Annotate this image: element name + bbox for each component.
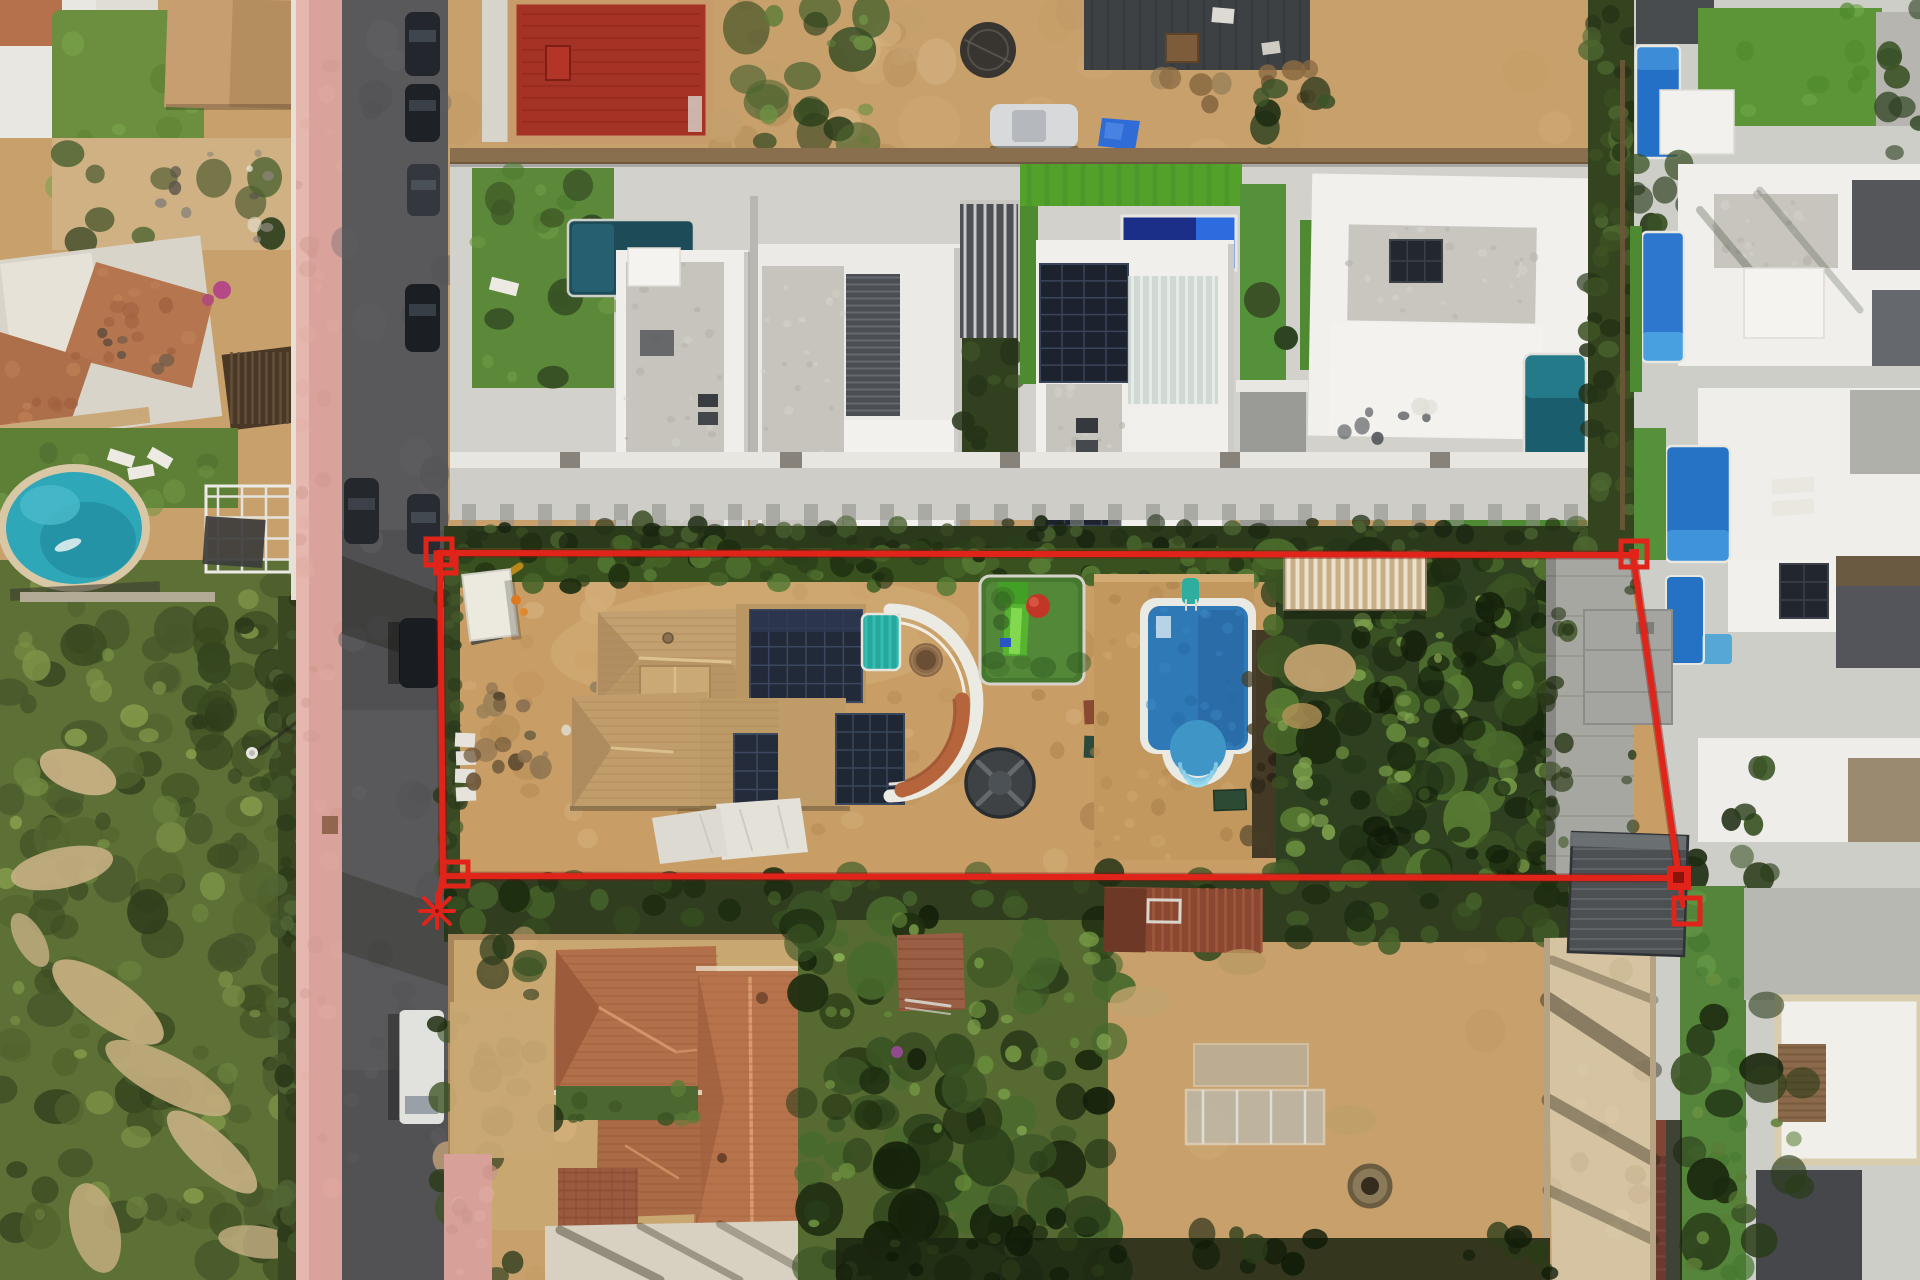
parked-car: [405, 84, 440, 142]
garden-highlights: [1005, 1046, 1021, 1063]
mat-shadows: [1066, 652, 1091, 673]
gravel-noise: [1065, 389, 1074, 398]
hedge-texture: [1566, 516, 1587, 533]
jungle-shadows: [1363, 816, 1390, 837]
white-item: [1261, 41, 1280, 55]
white-block: [455, 732, 476, 747]
scrub-texture-dark: [228, 768, 242, 784]
dark-trailer: [202, 516, 265, 568]
hedge-texture: [280, 1206, 298, 1226]
gravel-noise: [708, 431, 716, 437]
scrub-texture-light: [183, 1188, 203, 1204]
hedge-texture: [1604, 432, 1619, 448]
gravel-noise: [1365, 275, 1371, 282]
gravel-noise: [783, 285, 789, 291]
scrub-texture-dark: [228, 1104, 252, 1123]
jungle-shadows: [1466, 848, 1479, 859]
jungle-highlights: [1434, 653, 1442, 663]
scrub-texture-dark: [60, 624, 107, 666]
mat-shadows: [1030, 657, 1056, 678]
terrace-trees: [85, 207, 115, 232]
tree-cluster: [723, 1, 770, 54]
hedge-texture: [1002, 518, 1015, 528]
metal-structure: [1568, 832, 1688, 956]
hedge-texture: [937, 577, 957, 597]
jungle-clearing: [1284, 644, 1356, 692]
scrub-bush-cluster: [192, 715, 208, 730]
terrace-furniture: [1365, 407, 1373, 417]
shadow-band-texture: [927, 1245, 939, 1255]
sidewalk-texture: [296, 486, 308, 499]
parcel-dirt-texture: [577, 829, 597, 848]
gravel-noise: [1399, 308, 1405, 312]
silver-car-roof: [1012, 110, 1046, 142]
shadow-band-texture: [966, 1239, 979, 1250]
sidewalk-texture: [307, 936, 323, 954]
shadow-band-texture: [988, 1233, 1001, 1244]
gravel-noise: [1530, 252, 1538, 262]
hedge-texture: [790, 524, 805, 541]
deck-texture: [1150, 835, 1166, 848]
hedge-texture: [1147, 514, 1165, 532]
terrace-items: [253, 236, 261, 243]
tree-highlights: [827, 40, 836, 48]
shadow-gap: [1666, 1120, 1682, 1280]
sidewalk-texture: [300, 119, 311, 130]
jungle-highlights: [1299, 757, 1312, 768]
jungle-clearing: [1282, 703, 1322, 729]
scrub-texture-dark: [164, 624, 190, 646]
gravel-noise: [1119, 422, 1125, 429]
hedge-texture: [608, 563, 629, 588]
roof-equipment: [640, 330, 674, 356]
gravel-noise: [1518, 300, 1522, 304]
driveway-texture: [1578, 1064, 1589, 1075]
jungle-canopy: [1376, 783, 1412, 816]
trees-edge: [1877, 41, 1902, 70]
fence-texture: [1240, 825, 1258, 846]
hedge-texture: [559, 578, 581, 594]
scrub-texture-light: [121, 1126, 151, 1148]
woodpile: [1159, 67, 1181, 90]
hedge-texture: [1578, 321, 1601, 341]
van-shadow: [388, 1014, 400, 1120]
hedge-texture: [275, 997, 289, 1008]
garden-trees: [798, 1132, 826, 1158]
sunbed: [1772, 477, 1815, 495]
scrub-texture-light: [192, 904, 209, 923]
tan-gable-house: [229, 0, 298, 109]
tree-band-texture: [1421, 926, 1439, 944]
villaB-dark-roof: [1852, 180, 1920, 270]
tan-gable-house: [164, 0, 233, 109]
mosaic-inner: [916, 650, 936, 670]
gravel-noise: [1749, 251, 1753, 256]
roadside-trees-south: [427, 1016, 448, 1032]
lawn-texture: [1736, 41, 1754, 61]
scrub-texture-dark: [52, 1048, 77, 1076]
south-palms: [1745, 1066, 1787, 1103]
shadow-band-texture: [1031, 1225, 1048, 1240]
roof-vent: [546, 46, 570, 80]
driveway-texture: [1570, 1152, 1589, 1172]
tile-texture: [64, 398, 78, 409]
trees-mid: [1730, 845, 1754, 869]
gravel-noise: [1407, 287, 1412, 293]
parcel-dirt-texture: [463, 681, 477, 691]
lawn-texture: [535, 184, 546, 195]
left-pool-shallow: [20, 485, 80, 525]
lawn-texture: [1732, 1254, 1754, 1280]
tree-band-texture: [718, 899, 741, 922]
sidewalk-texture: [307, 248, 318, 257]
garden-trees: [1044, 1061, 1067, 1080]
hedge-texture: [1306, 518, 1319, 528]
scrub-texture-dark: [149, 940, 174, 958]
garden-highlights: [969, 1001, 986, 1018]
villa-windows: [103, 339, 113, 347]
hedge-texture: [1595, 245, 1609, 256]
road-texture: [352, 303, 387, 342]
terrace-furniture: [1337, 424, 1351, 439]
hedge-texture: [1070, 525, 1083, 537]
scrub-texture-light: [65, 729, 87, 747]
hedge-texture: [1609, 208, 1629, 226]
deck-texture: [1098, 806, 1105, 812]
car-windshield: [411, 512, 436, 523]
stair-bulkhead: [1744, 268, 1824, 338]
villa2-pergola-slats: [846, 274, 900, 416]
aerial-property-photo: [0, 0, 1920, 1280]
roadside-trees-south: [523, 989, 539, 1001]
scrub-texture-light: [126, 1197, 148, 1219]
terrace-items: [155, 198, 167, 208]
hedge-texture: [1602, 5, 1620, 23]
gravel-noise: [826, 297, 833, 306]
hedge-texture: [967, 375, 987, 397]
road-texture: [370, 1037, 386, 1051]
gravel-noise: [794, 385, 800, 392]
gravel-noise: [1054, 387, 1063, 397]
garden-sand-patch: [1324, 1105, 1376, 1135]
terrace-items: [181, 207, 191, 218]
hedge-texture: [1582, 27, 1601, 47]
jungle-canopy: [1271, 776, 1288, 789]
south-palms: [1705, 1089, 1743, 1117]
garden-highlights: [884, 1011, 892, 1017]
deck-texture: [1158, 778, 1167, 787]
hedge-texture: [1434, 520, 1452, 538]
tree-band-texture: [1344, 901, 1374, 932]
jungle-shadows: [1351, 626, 1370, 649]
garden-trees: [1010, 932, 1060, 990]
gravel-noise: [1417, 227, 1426, 233]
terrace-items: [263, 171, 274, 181]
gravel-noise: [1745, 242, 1753, 250]
scrub-texture-dark: [55, 1094, 84, 1126]
scrub-texture-dark: [6, 1161, 27, 1178]
pool-water-texture: [1182, 627, 1190, 634]
parcel-dirt-texture: [887, 691, 902, 704]
scrub-texture-light: [90, 680, 112, 703]
corner-star-center: [435, 909, 439, 913]
construction-debris: [518, 750, 533, 763]
gravel-noise: [1107, 444, 1112, 448]
hedge-texture: [1588, 149, 1603, 161]
scrub-texture-dark: [70, 1024, 91, 1039]
garden-highlights: [834, 953, 845, 962]
garden-trees: [847, 941, 897, 1000]
sidewalk-texture: [299, 261, 316, 277]
path-texture: [474, 1209, 486, 1222]
gravel-noise: [1745, 219, 1750, 224]
palm-fronds: [1706, 973, 1721, 985]
scrub-texture-light: [13, 758, 40, 788]
scrub-texture-light: [13, 981, 25, 994]
scrub-bush-cluster: [249, 776, 271, 791]
deck-texture: [1125, 818, 1135, 828]
deck-texture: [1151, 799, 1165, 816]
stair-bulkhead: [628, 248, 680, 286]
hedge-texture: [1545, 518, 1560, 532]
parcel-dirt-texture: [811, 823, 825, 835]
ac-unit: [698, 394, 718, 407]
scrub-texture-light: [217, 1063, 237, 1084]
gravel-noise: [798, 317, 806, 323]
fence-texture: [1255, 710, 1264, 716]
jungle-shadows: [1432, 709, 1463, 745]
gravel-noise: [1764, 263, 1769, 268]
tree-cluster: [804, 12, 828, 36]
ac-unit: [1076, 418, 1098, 433]
mat-shadows: [993, 614, 1009, 630]
construction-debris: [516, 699, 530, 712]
hedge-texture: [1524, 528, 1538, 540]
hedge-texture: [1606, 160, 1622, 175]
garden-highlights: [933, 1124, 942, 1133]
lawn-texture: [502, 162, 525, 180]
tree-highlights: [849, 35, 860, 43]
hedge-texture: [1456, 524, 1474, 544]
hedge-texture: [688, 516, 708, 534]
garden-trees: [784, 924, 818, 962]
jungle-highlights: [1379, 766, 1393, 777]
mat-shadows: [1013, 655, 1032, 670]
garden-texture: [576, 1114, 585, 1122]
gravel-noise: [784, 406, 793, 415]
lawn-texture: [598, 298, 619, 314]
scrub-texture-light: [238, 589, 259, 609]
sidewalk-texture: [298, 326, 316, 343]
south-gray-roof: [1744, 888, 1920, 1000]
gate-gap: [1220, 452, 1240, 468]
deck-texture: [1109, 594, 1121, 604]
dirt-texture: [1464, 948, 1487, 964]
tile-texture: [103, 351, 114, 363]
deck-texture: [1127, 791, 1138, 802]
gravel-noise: [783, 320, 791, 328]
gravel-noise: [1058, 426, 1064, 431]
terrace-items: [255, 150, 262, 158]
tree-band-texture: [768, 891, 781, 905]
hedge-texture: [776, 522, 793, 539]
scrub-texture-light: [74, 1049, 87, 1058]
jungle-shadows: [1485, 845, 1508, 864]
rust-dark-patch: [1103, 888, 1146, 953]
red-flat-roof-building: [512, 0, 710, 140]
lawn-texture: [112, 124, 125, 136]
sidewalk-texture: [318, 85, 335, 103]
tile-texture: [104, 317, 115, 327]
palm-fronds: [1728, 1191, 1747, 1209]
sunbed: [1772, 499, 1815, 517]
trees-mid: [1734, 804, 1756, 821]
gravel-noise: [1737, 238, 1745, 244]
gate-gap: [1430, 452, 1450, 468]
garden-highlights: [892, 912, 907, 928]
deck-texture: [1106, 652, 1113, 660]
sandy-lot-texture: [917, 38, 956, 84]
well-hole: [1361, 1177, 1379, 1195]
path-texture: [452, 1199, 467, 1217]
hedge-texture: [448, 678, 463, 692]
hedge-texture: [498, 522, 511, 533]
gravel-noise: [1490, 245, 1497, 250]
villaD-pool-steps: [1702, 634, 1732, 664]
divider-trees: [1653, 176, 1678, 203]
gate-gap: [780, 452, 802, 468]
hedge-texture: [269, 1020, 290, 1040]
gravel-noise: [1516, 274, 1520, 278]
lawn-texture: [1807, 75, 1830, 93]
palm-trees: [563, 170, 593, 202]
sidewalk-texture: [314, 799, 327, 812]
scrub-texture-dark: [260, 572, 296, 598]
palm-fronds: [1735, 1172, 1747, 1182]
deck-texture: [1090, 747, 1101, 756]
scrub-texture-light: [153, 681, 167, 694]
deck-texture: [1137, 769, 1149, 780]
scrub-texture-light: [118, 961, 142, 981]
tile-texture: [5, 361, 20, 379]
shadow-band-texture: [1001, 1260, 1021, 1280]
trees-top-right-lot: [1317, 94, 1335, 108]
pergola-shadow: [1284, 610, 1426, 619]
scrub-texture-light: [200, 872, 225, 900]
garden-trees: [873, 1141, 920, 1189]
chimney: [717, 1153, 727, 1163]
blue-toy: [1000, 638, 1011, 647]
pool-water-texture: [1171, 712, 1185, 727]
tree-band-texture: [642, 895, 666, 916]
corner-marker-br-hole: [1673, 872, 1684, 883]
hedge-texture: [1248, 523, 1270, 539]
driveway-texture: [1604, 1106, 1619, 1124]
pool-water-texture: [1159, 662, 1171, 673]
deck-texture: [1109, 638, 1117, 645]
construction-debris: [495, 737, 512, 752]
garden-highlights: [825, 1080, 835, 1089]
gravel-noise: [1445, 242, 1454, 250]
tile-texture: [23, 403, 32, 411]
lawn-texture: [1852, 65, 1870, 80]
gravel-noise: [1509, 284, 1513, 289]
garden-highlights: [909, 1083, 920, 1096]
tree-band-texture: [1285, 925, 1313, 950]
lawn-texture: [156, 117, 182, 141]
jungle-shadows: [1494, 781, 1511, 796]
garden-sand-patch: [1218, 949, 1266, 975]
sidewalk-texture: [318, 1133, 328, 1143]
sidewalk-texture: [323, 1179, 341, 1199]
tree-band-texture: [590, 889, 609, 911]
hedge-texture: [1034, 515, 1048, 532]
shadow-band-texture: [1508, 1241, 1521, 1255]
sidewalk-texture: [301, 566, 316, 577]
hedge-texture: [522, 573, 544, 594]
hedge-texture: [971, 439, 986, 450]
tree-band-texture: [1302, 884, 1331, 904]
tree-cluster: [829, 27, 876, 72]
hedge-texture: [1000, 338, 1023, 366]
jungle-shadows: [1460, 651, 1476, 666]
tree-band-texture: [1420, 893, 1439, 909]
gravel-noise: [806, 361, 813, 368]
path-texture: [456, 1268, 464, 1276]
tree-highlights: [858, 104, 873, 116]
hedge-texture: [1504, 530, 1525, 545]
sidewalk-texture: [319, 668, 335, 681]
lawn-texture: [163, 479, 185, 503]
driveway-texture: [1575, 1099, 1586, 1109]
garden-highlights: [998, 1089, 1010, 1100]
garden-highlights: [1064, 992, 1075, 1003]
sidewalk-texture: [295, 418, 310, 433]
jungle-shadows: [1475, 621, 1496, 636]
garden-highlights: [840, 1008, 851, 1017]
deck-texture: [1165, 853, 1172, 860]
lawn-texture: [1696, 967, 1709, 977]
jungle-canopy: [1342, 826, 1362, 843]
pool-water-texture: [1210, 710, 1222, 721]
tile-texture: [128, 288, 141, 297]
villa-windows: [97, 328, 107, 338]
road-texture: [352, 786, 367, 799]
hedge-texture: [1597, 61, 1614, 75]
divider-trees: [1647, 213, 1668, 233]
gravel-noise: [705, 329, 714, 338]
palm-trees: [540, 208, 564, 228]
gate-gap: [560, 452, 580, 468]
villaC-patio: [1850, 390, 1920, 474]
palm-trees: [491, 199, 514, 225]
shadow-band-texture: [1005, 1226, 1033, 1256]
path-shade: [1546, 556, 1556, 878]
tree-band-texture: [1384, 927, 1399, 942]
tree-cluster: [784, 62, 821, 90]
tree-band-texture: [460, 907, 487, 937]
gravel-noise: [1452, 314, 1457, 320]
hedge-texture: [273, 674, 296, 693]
garden-trees: [855, 1100, 883, 1130]
hedge-texture: [807, 569, 821, 580]
lawn-texture: [1845, 40, 1865, 64]
shadow-band-texture: [1192, 1240, 1220, 1270]
gravel-noise: [717, 375, 723, 380]
terrace-items: [207, 152, 214, 157]
roadside-trees-south: [512, 957, 543, 982]
woodpile: [1189, 73, 1213, 96]
